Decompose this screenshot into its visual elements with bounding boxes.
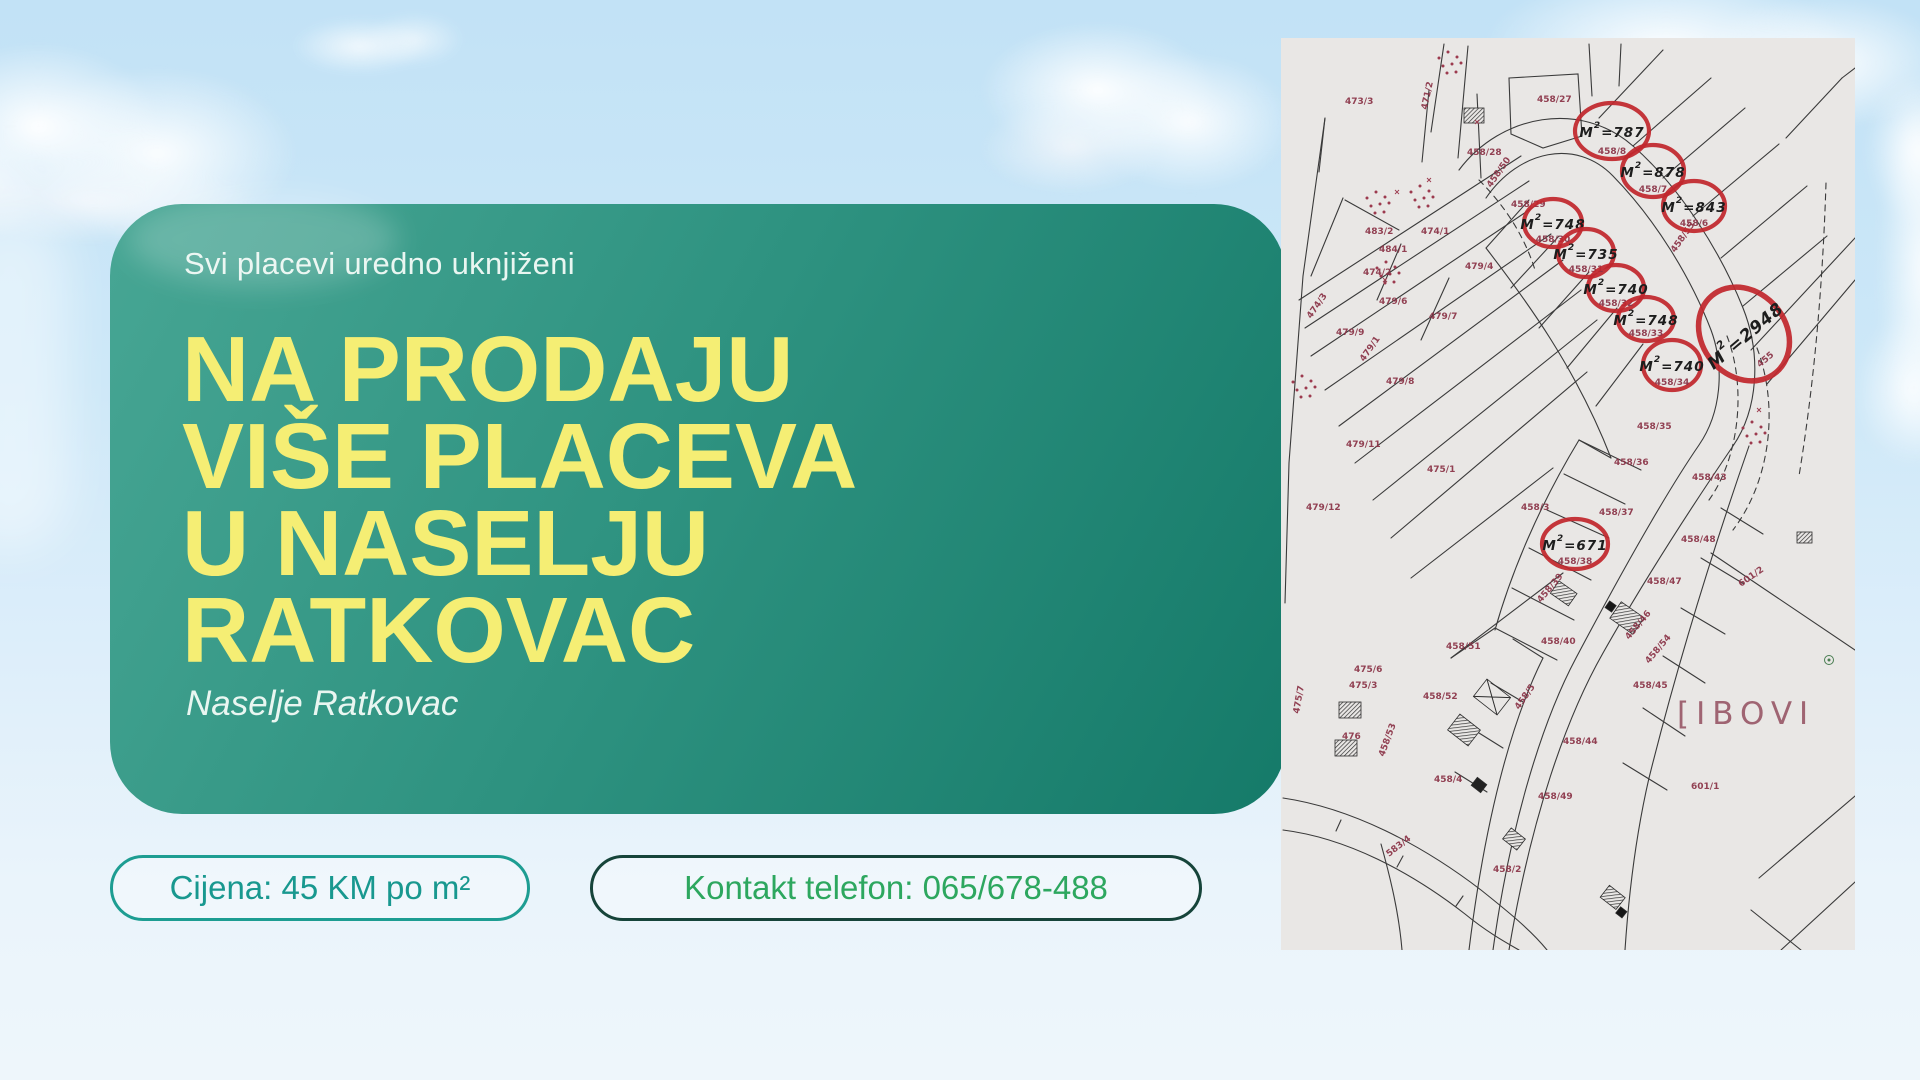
area-circle: M2=671458/38 xyxy=(1542,519,1608,569)
orchard-dots xyxy=(1292,51,1767,445)
parcel-label: 479/1 xyxy=(1358,335,1382,364)
parcel-label: 474/3 xyxy=(1305,292,1329,321)
area-circle: M2=787458/8 xyxy=(1575,103,1649,159)
cadastral-map-image: 473/3471/2458/27458/28458/50458/29483/24… xyxy=(1281,38,1855,950)
parcel-label: 458/44 xyxy=(1563,737,1598,747)
parcel-label: 458/51 xyxy=(1446,642,1481,652)
headline-line: VIŠE PLACEVA xyxy=(182,413,857,500)
parcel-label: 601/2 xyxy=(1737,565,1766,589)
headline-line: NA PRODAJU xyxy=(182,326,857,413)
contact-pill-label: Kontakt telefon: 065/678-488 xyxy=(684,869,1108,907)
parcel-label: 458/53 xyxy=(1377,722,1398,758)
parcel-label: 458/43 xyxy=(1692,473,1727,483)
cloud xyxy=(972,18,1302,198)
parcel-label: 458/48 xyxy=(1681,535,1716,545)
parcel-label: 458/35 xyxy=(1637,422,1672,432)
headline-line: RATKOVAC xyxy=(182,587,857,674)
parcel-label: 474/1 xyxy=(1421,227,1449,237)
area-circle: M2=740458/32 xyxy=(1583,265,1648,311)
parcel-label: 479/4 xyxy=(1465,262,1493,272)
svg-text:M2=787: M2=787 xyxy=(1579,121,1644,141)
cadastral-map-svg: 473/3471/2458/27458/28458/50458/29483/24… xyxy=(1281,38,1855,950)
parcel-label: 475/6 xyxy=(1354,665,1382,675)
parcel-label: 479/9 xyxy=(1336,328,1364,338)
offer-card: Svi placevi uredno uknjiženi NA PRODAJU … xyxy=(110,204,1286,814)
parcel-label: 479/12 xyxy=(1306,503,1341,513)
svg-text:458/34: 458/34 xyxy=(1655,378,1690,388)
parcel-label: 483/2 xyxy=(1365,227,1393,237)
parcel-label: 479/8 xyxy=(1386,377,1414,387)
parcel-label: 458/54 xyxy=(1644,633,1674,666)
poster: Svi placevi uredno uknjiženi NA PRODAJU … xyxy=(0,0,1920,1080)
parcel-label: 458/3 xyxy=(1521,503,1549,513)
svg-text:M2=740: M2=740 xyxy=(1639,355,1704,375)
headline: NA PRODAJU VIŠE PLACEVA U NASELJU RATKOV… xyxy=(182,326,857,674)
price-pill-label: Cijena: 45 KM po m² xyxy=(170,869,471,907)
parcel-label: 601/1 xyxy=(1691,782,1719,792)
parcel-label: 458/40 xyxy=(1541,637,1576,647)
parcel-boundaries xyxy=(1283,44,1855,950)
cloud xyxy=(288,10,468,76)
parcel-label: 476 xyxy=(1342,732,1361,742)
svg-text:M2=878: M2=878 xyxy=(1620,161,1685,181)
parcel-label: 458/4 xyxy=(1434,775,1462,785)
parcel-label: 479/7 xyxy=(1429,312,1457,322)
svg-text:458/38: 458/38 xyxy=(1558,557,1593,567)
headline-line: U NASELJU xyxy=(182,500,857,587)
svg-text:M2=740: M2=740 xyxy=(1583,278,1648,298)
parcel-label: 475/1 xyxy=(1427,465,1455,475)
area-circle: M2=735458/31 xyxy=(1553,229,1618,277)
svg-text:458/8: 458/8 xyxy=(1598,147,1626,157)
area-circle: M2=748458/30 xyxy=(1520,199,1585,247)
parcel-label: 475/7 xyxy=(1292,685,1307,715)
svg-text:M2=2948: M2=2948 xyxy=(1700,294,1788,374)
parcel-label: 458/28 xyxy=(1467,148,1502,158)
cloud-over-card xyxy=(128,192,398,287)
parcel-label: 479/6 xyxy=(1379,297,1407,307)
parcel-label: 458/45 xyxy=(1633,681,1668,691)
map-watermark: [IBOVI xyxy=(1677,696,1815,732)
parcel-label: 471/2 xyxy=(1420,81,1436,111)
parcel-label: 474/2 xyxy=(1363,268,1391,278)
parcel-label: 458/52 xyxy=(1423,692,1458,702)
area-circle: M2=2948455 xyxy=(1676,266,1812,402)
svg-text:M2=671: M2=671 xyxy=(1542,534,1607,554)
parcel-label: 458/47 xyxy=(1647,577,1682,587)
svg-text:458/7: 458/7 xyxy=(1639,185,1667,195)
cloud xyxy=(1852,70,1920,470)
price-pill[interactable]: Cijena: 45 KM po m² xyxy=(110,855,530,921)
cloud-haze xyxy=(0,210,70,550)
parcel-label: 458/5 xyxy=(1513,683,1537,712)
svg-text:M2=843: M2=843 xyxy=(1661,196,1726,216)
svg-text:458/6: 458/6 xyxy=(1680,219,1708,229)
area-circle: M2=878458/7 xyxy=(1620,145,1685,197)
subtitle: Naselje Ratkovac xyxy=(186,684,458,724)
parcel-label: 458/37 xyxy=(1599,508,1634,518)
parcel-label: 458/2 xyxy=(1493,865,1521,875)
svg-text:458/33: 458/33 xyxy=(1629,329,1664,339)
parcel-label: 458/27 xyxy=(1537,95,1572,105)
parcel-label: 473/3 xyxy=(1345,97,1373,107)
contact-pill[interactable]: Kontakt telefon: 065/678-488 xyxy=(590,855,1202,921)
parcel-label: 479/11 xyxy=(1346,440,1381,450)
area-circle: M2=740458/34 xyxy=(1639,340,1704,390)
parcel-label: 484/1 xyxy=(1379,245,1407,255)
highlight-circles: M2=787458/8M2=878458/7M2=843458/6M2=7484… xyxy=(1520,103,1811,569)
area-circle: M2=843458/6 xyxy=(1661,181,1726,231)
parcel-label: 475/3 xyxy=(1349,681,1377,691)
parcel-label: 458/36 xyxy=(1614,458,1649,468)
parcel-label: 458/49 xyxy=(1538,792,1573,802)
area-circle: M2=748458/33 xyxy=(1613,297,1678,341)
